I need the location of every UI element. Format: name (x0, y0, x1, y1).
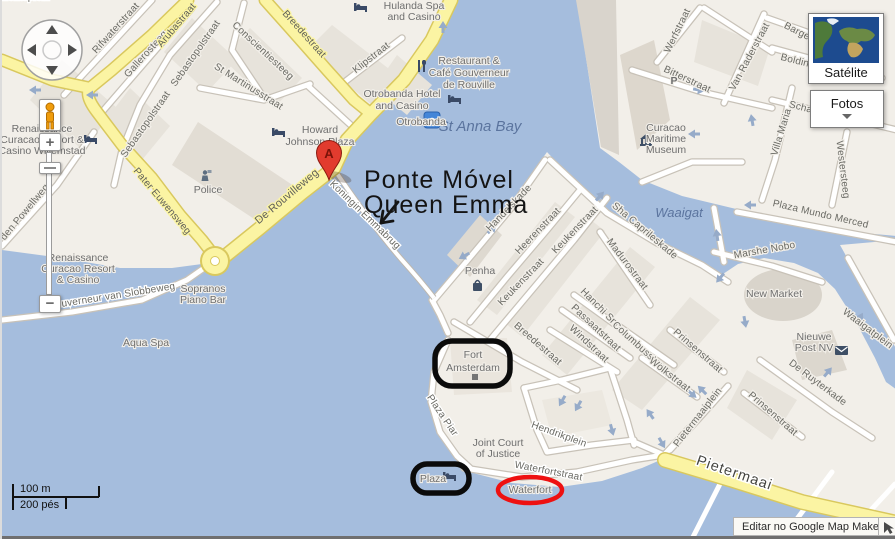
poi-label: & Casino (57, 274, 100, 286)
street-label: Gouvernementsplein (2, 0, 50, 3)
annotation-text-line1: Ponte Móvel (364, 166, 514, 194)
map-maker-cursor-button[interactable] (878, 517, 895, 536)
poi-label: Café Gouverneur (429, 67, 510, 79)
water-label-st-anna-bay: St Anna Bay (439, 118, 523, 135)
street-view-pegman-button[interactable] (39, 99, 61, 131)
poi-label: and Casino (375, 100, 428, 112)
satellite-button-label: Satélite (824, 65, 867, 80)
marker-letter: A (324, 146, 334, 161)
scale-metric-label: 100 m (20, 483, 51, 495)
poi-label: Police (194, 184, 223, 196)
satellite-thumbnail-icon (813, 17, 879, 63)
chevron-down-icon (842, 114, 852, 119)
poi-label: Waterfort (509, 484, 552, 496)
poi-label: Piano Bar (180, 294, 227, 306)
poi-label: Fort (464, 349, 483, 361)
edit-map-maker-link[interactable]: Editar no Google Map Maker (733, 517, 892, 536)
poi-label: Howard (302, 124, 338, 136)
poi-label: de Rouville (443, 79, 495, 91)
mail-icon (835, 346, 848, 355)
poi-label: Otrobanda (396, 116, 446, 128)
scale-imperial-label: 200 pés (20, 499, 60, 511)
poi-label: New Market (746, 288, 802, 300)
poi-label: Post NV (795, 342, 834, 354)
parking-label: P (670, 75, 677, 87)
scale-bar: 100 m 200 pés (8, 470, 128, 535)
zoom-in-button[interactable]: + (39, 133, 61, 151)
map-canvas[interactable]: Rifwaterstraat Gallerosteeg Arubastraat … (2, 0, 895, 539)
poi-label: Aqua Spa (123, 337, 169, 349)
map-viewport[interactable]: Rifwaterstraat Gallerosteeg Arubastraat … (0, 0, 895, 539)
water-label-waaigat: Waaigat (655, 205, 704, 220)
poi-label: Plaza (420, 473, 446, 485)
poi-label: Museum (646, 144, 687, 156)
poi-label: of Justice (476, 448, 521, 460)
poi-label: and Casino (387, 11, 440, 23)
pegman-icon (40, 101, 60, 131)
pan-control[interactable] (19, 17, 85, 83)
satellite-view-button[interactable]: Satélite (808, 13, 884, 84)
poi-label: Penha (465, 265, 496, 277)
roundabout (200, 246, 230, 276)
zoom-slider-handle[interactable] (39, 162, 61, 174)
fort-marker-square (472, 374, 478, 380)
poi-label: Otrobanda Hotel (363, 88, 440, 100)
poi-label: Restaurant & (438, 55, 499, 67)
cursor-arrow-icon (879, 518, 895, 537)
photos-button[interactable]: Fotos (810, 90, 884, 128)
zoom-out-button[interactable]: − (39, 295, 61, 313)
photos-button-label: Fotos (831, 96, 864, 111)
poi-label: Amsterdam (446, 362, 500, 374)
